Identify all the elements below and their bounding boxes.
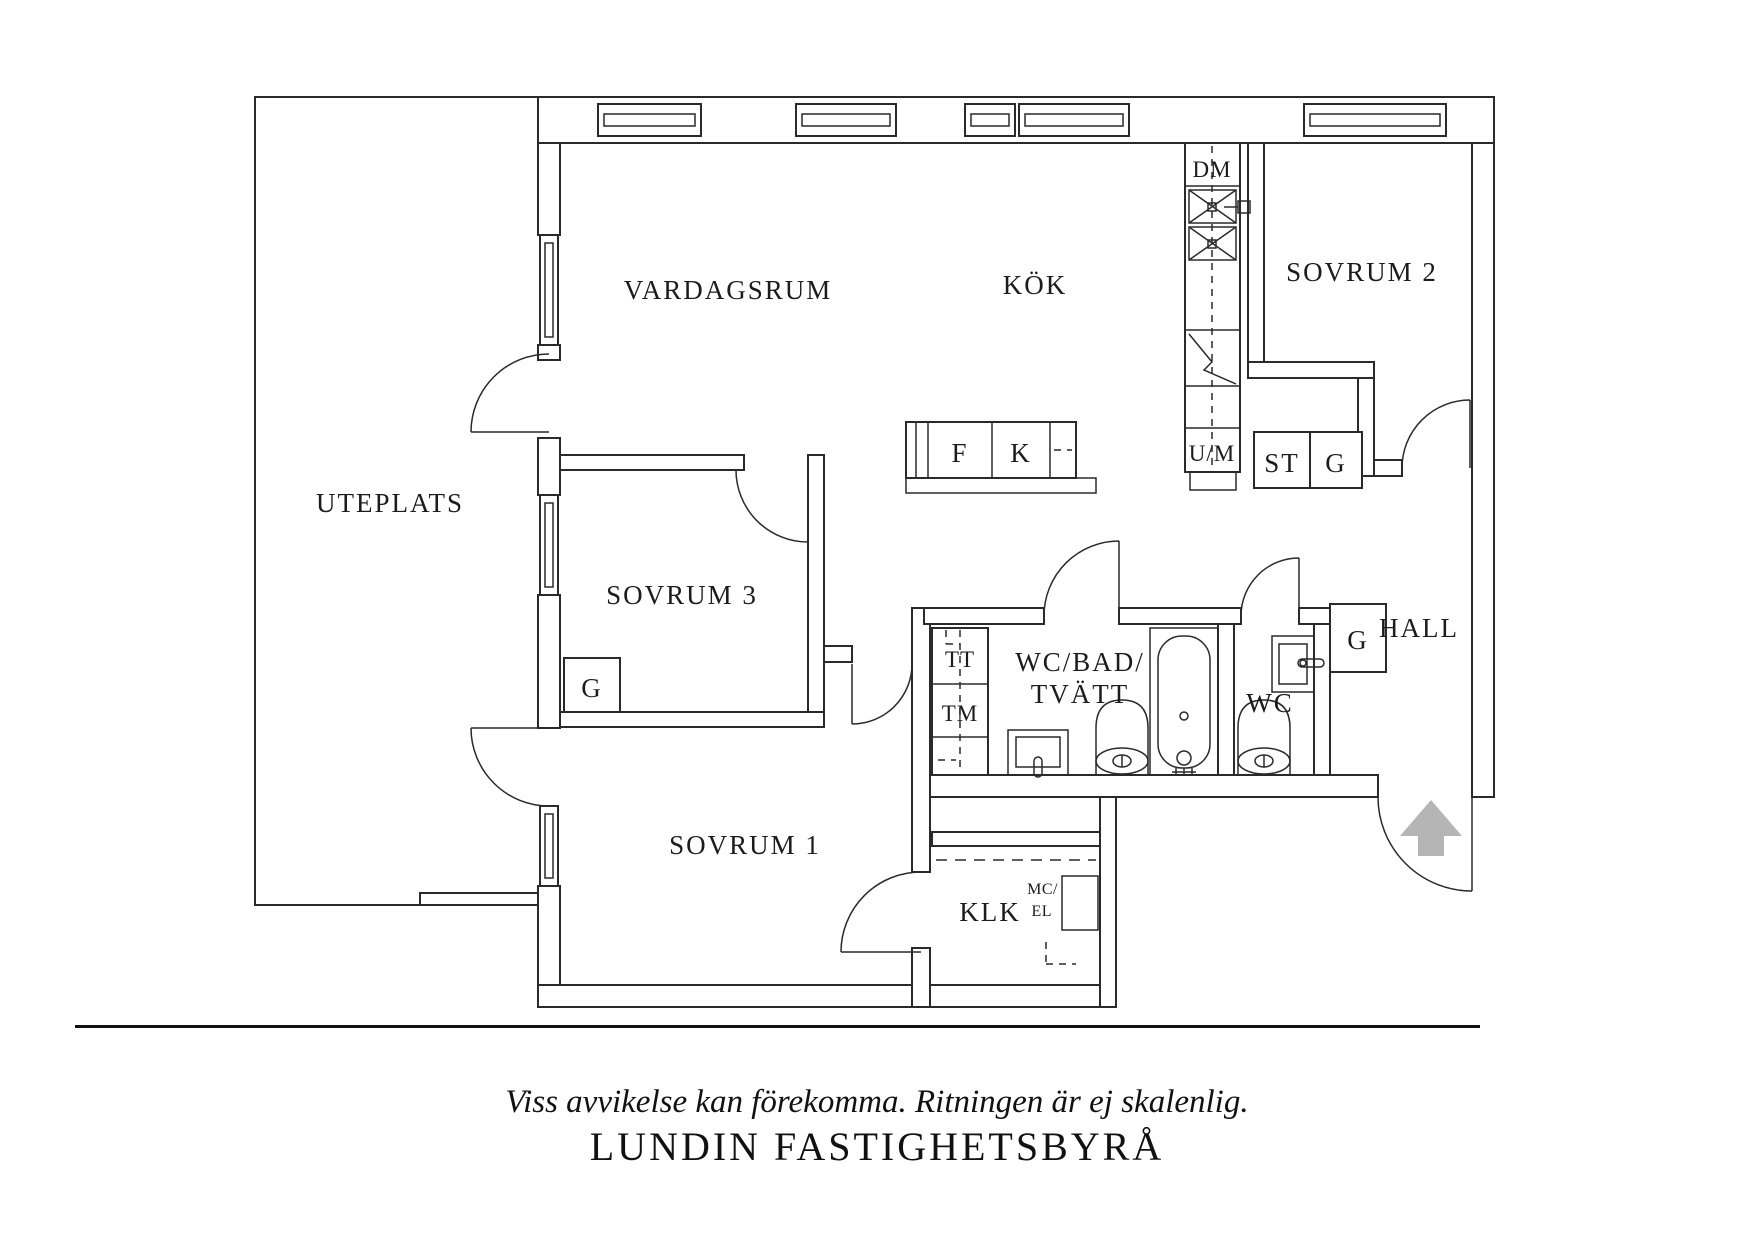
- label-uteplats: UTEPLATS: [316, 488, 464, 518]
- wall-left-4: [538, 595, 560, 728]
- bathtub-icon: [1150, 628, 1218, 775]
- floor-plan-drawing: DM U/M F K ST G G G TT TM: [0, 0, 1754, 1240]
- wall-bath-wc-divider: [1218, 624, 1234, 775]
- door-klk: [841, 872, 921, 952]
- wall-right: [1472, 143, 1494, 797]
- window: [1304, 104, 1446, 136]
- label-tt: TT: [945, 647, 975, 672]
- label-st: ST: [1264, 448, 1300, 478]
- door-vardagsrum-uteplats: [471, 354, 549, 432]
- label-k: K: [1010, 438, 1032, 468]
- label-g-hall: G: [1347, 625, 1369, 655]
- wall-corridor-east-upper: [912, 608, 930, 872]
- wall-sovrum3-bottom: [560, 712, 824, 727]
- room-labels: UTEPLATS VARDAGSRUM KÖK SOVRUM 2 SOVRUM …: [316, 257, 1459, 927]
- wall-sovrum2-door-jamb: [1374, 460, 1402, 476]
- windows-left: [540, 235, 558, 886]
- kitchen-counter: DM U/M: [1185, 143, 1250, 490]
- wall-klk-right: [1100, 797, 1116, 1007]
- window: [540, 806, 558, 886]
- entrance-arrow-icon: [1400, 800, 1462, 856]
- label-kok: KÖK: [1003, 270, 1068, 300]
- wall-sovrum3-top: [560, 455, 744, 470]
- wall-wc-right: [1314, 624, 1330, 775]
- wall-sovrum2-left: [1248, 143, 1264, 378]
- door-sovrum1-uteplats: [471, 728, 549, 806]
- wall-bottom-hall: [924, 775, 1378, 797]
- mc-el-box: [1062, 876, 1098, 930]
- label-hall: HALL: [1379, 613, 1459, 643]
- label-wc-bad-1: WC/BAD/: [1015, 647, 1145, 677]
- label-dm: DM: [1192, 157, 1231, 182]
- window: [1019, 104, 1129, 136]
- footer-divider: [75, 1025, 1480, 1028]
- sink-icon: [1008, 730, 1068, 777]
- footer-disclaimer: Viss avvikelse kan förekomma. Ritningen …: [505, 1084, 1248, 1120]
- label-um: U/M: [1189, 441, 1235, 466]
- window: [796, 104, 896, 136]
- wall-corridor-east-lower: [912, 948, 930, 1007]
- terrace-parapet-line: [420, 893, 538, 905]
- toilet-icon: [1096, 700, 1148, 775]
- door-sovrum2: [1402, 400, 1470, 468]
- counter-base: [1190, 472, 1236, 490]
- wall-left-2: [538, 345, 560, 360]
- window: [598, 104, 701, 136]
- label-tm: TM: [942, 701, 979, 726]
- label-wc-bad-2: TVÄTT: [1031, 679, 1129, 709]
- footer: Viss avvikelse kan förekomma. Ritningen …: [75, 1025, 1480, 1169]
- window: [540, 495, 558, 595]
- door-wc: [1241, 558, 1299, 616]
- inner-walls: [560, 143, 1402, 1007]
- laundry-column: TT TM: [932, 628, 988, 775]
- label-wc: WC: [1246, 688, 1294, 718]
- label-vardagsrum: VARDAGSRUM: [624, 275, 833, 305]
- outer-walls: [538, 97, 1494, 1007]
- wall-klk-top: [932, 832, 1100, 846]
- label-f: F: [951, 438, 968, 468]
- label-mc: MC/: [1027, 881, 1058, 898]
- wall-left-3: [538, 438, 560, 495]
- wall-left-1: [538, 143, 560, 235]
- wall-sovrum2-bottom: [1248, 362, 1374, 378]
- label-sovrum1: SOVRUM 1: [669, 830, 821, 860]
- door-sovrum1: [852, 664, 912, 724]
- fk-shelf: [906, 478, 1096, 493]
- wall-wc-top: [1299, 608, 1330, 624]
- window: [540, 235, 558, 345]
- floor-plan-page: DM U/M F K ST G G G TT TM: [0, 0, 1754, 1240]
- wall-bath-top-1: [924, 608, 1044, 624]
- label-el: EL: [1031, 903, 1052, 920]
- label-g-sovrum3: G: [581, 673, 603, 703]
- label-sovrum2: SOVRUM 2: [1286, 257, 1438, 287]
- label-klk: KLK: [959, 897, 1021, 927]
- klk-dash-marks: [1046, 942, 1076, 964]
- window: [965, 104, 1015, 136]
- wall-corridor-stub: [824, 646, 852, 662]
- wall-bath-top-2: [1119, 608, 1241, 624]
- door-sovrum3: [736, 470, 808, 542]
- wall-sovrum3-right: [808, 455, 824, 727]
- label-sovrum3: SOVRUM 3: [606, 580, 758, 610]
- label-g-upper: G: [1325, 448, 1347, 478]
- footer-brand: LUNDIN FASTIGHETSBYRÅ: [590, 1124, 1164, 1169]
- door-bathroom: [1044, 541, 1119, 616]
- fridge-freezer-unit: F K: [906, 422, 1096, 493]
- wall-bottom-left: [538, 985, 1116, 1007]
